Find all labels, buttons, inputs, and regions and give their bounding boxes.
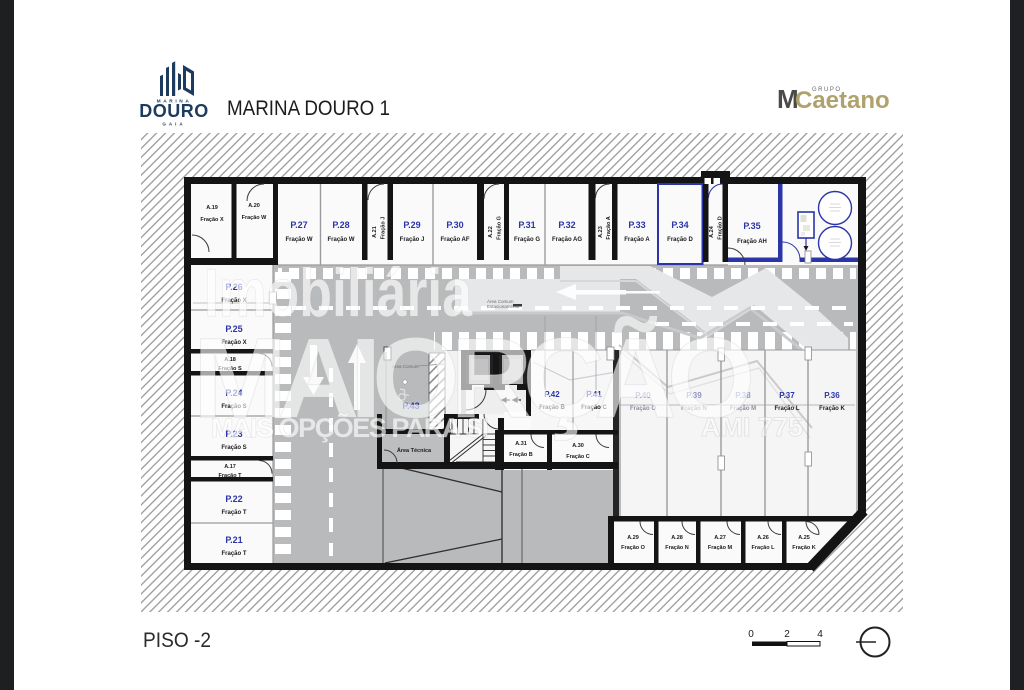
svg-text:Fração J: Fração J <box>381 217 387 240</box>
svg-text:P.33: P.33 <box>628 220 645 230</box>
svg-text:A.24: A.24 <box>709 225 715 238</box>
svg-text:A.17: A.17 <box>224 464 236 470</box>
svg-text:P.37: P.37 <box>779 391 795 400</box>
svg-text:A.23: A.23 <box>598 226 604 238</box>
svg-text:Fração S: Fração S <box>221 445 246 451</box>
svg-text:Fração O: Fração O <box>621 545 646 551</box>
svg-text:Fração W: Fração W <box>285 237 312 243</box>
svg-text:GAIA: GAIA <box>162 122 185 127</box>
svg-text:Fração J: Fração J <box>400 237 425 243</box>
svg-text:4: 4 <box>817 629 823 640</box>
svg-text:0: 0 <box>748 629 754 640</box>
svg-text:P.31: P.31 <box>518 220 535 230</box>
svg-text:P.28: P.28 <box>332 220 349 230</box>
svg-text:Fração M: Fração M <box>708 545 733 551</box>
svg-text:Fração A: Fração A <box>624 237 650 243</box>
svg-text:P.21: P.21 <box>225 535 242 545</box>
svg-text:Fração W: Fração W <box>327 237 354 243</box>
svg-text:Caetano: Caetano <box>795 87 890 114</box>
svg-text:Fração T: Fração T <box>221 551 246 557</box>
svg-text:P.22: P.22 <box>225 494 242 504</box>
svg-text:Fração T: Fração T <box>221 510 246 516</box>
svg-text:A.26: A.26 <box>757 535 769 541</box>
svg-text:Fração B: Fração B <box>509 452 533 458</box>
svg-text:Fração W: Fração W <box>242 215 268 221</box>
svg-text:A.25: A.25 <box>798 535 810 541</box>
svg-text:P.30: P.30 <box>446 220 463 230</box>
svg-text:A.29: A.29 <box>627 535 639 541</box>
svg-text:Fração AG: Fração AG <box>552 237 582 243</box>
svg-text:DOURO: DOURO <box>139 101 209 121</box>
svg-text:P.35: P.35 <box>743 221 760 231</box>
svg-text:A.22: A.22 <box>488 226 494 238</box>
svg-text:Fração K: Fração K <box>792 545 816 551</box>
svg-text:Fração K: Fração K <box>819 406 845 412</box>
svg-text:Fração D: Fração D <box>667 237 693 243</box>
svg-text:A.20: A.20 <box>248 203 260 209</box>
svg-text:Fração A: Fração A <box>606 216 612 239</box>
svg-text:A.31: A.31 <box>515 441 527 447</box>
svg-text:MAIS OPÇÕES PARA SI: MAIS OPÇÕES PARA SI <box>211 412 489 443</box>
svg-text:Fração G: Fração G <box>497 216 503 240</box>
svg-text:Fração D: Fração D <box>718 216 724 240</box>
svg-text:Fração T: Fração T <box>219 473 243 479</box>
svg-text:P.27: P.27 <box>290 220 307 230</box>
svg-text:Fração L: Fração L <box>752 545 776 551</box>
svg-text:PISO -2: PISO -2 <box>143 628 211 652</box>
svg-text:MARINA DOURO 1: MARINA DOURO 1 <box>227 97 390 120</box>
svg-text:A.27: A.27 <box>714 535 726 541</box>
svg-text:Fração N: Fração N <box>665 545 689 551</box>
svg-text:A.30: A.30 <box>572 443 584 449</box>
svg-text:Fração AH: Fração AH <box>737 239 767 245</box>
svg-text:Fração AF: Fração AF <box>440 237 469 243</box>
svg-text:Fração X: Fração X <box>200 217 224 223</box>
svg-text:Área Técnica: Área Técnica <box>397 447 432 454</box>
svg-text:P.34: P.34 <box>671 220 688 230</box>
svg-text:A.19: A.19 <box>206 205 218 211</box>
svg-text:P.36: P.36 <box>824 391 840 400</box>
svg-text:AMI 775: AMI 775 <box>701 412 803 442</box>
svg-text:P.32: P.32 <box>558 220 575 230</box>
svg-text:A.28: A.28 <box>671 535 683 541</box>
svg-text:A.21: A.21 <box>372 226 378 238</box>
svg-text:Fração C: Fração C <box>566 454 590 460</box>
svg-text:2: 2 <box>784 629 790 640</box>
svg-text:Fração G: Fração G <box>514 237 540 243</box>
svg-text:P.29: P.29 <box>403 220 420 230</box>
